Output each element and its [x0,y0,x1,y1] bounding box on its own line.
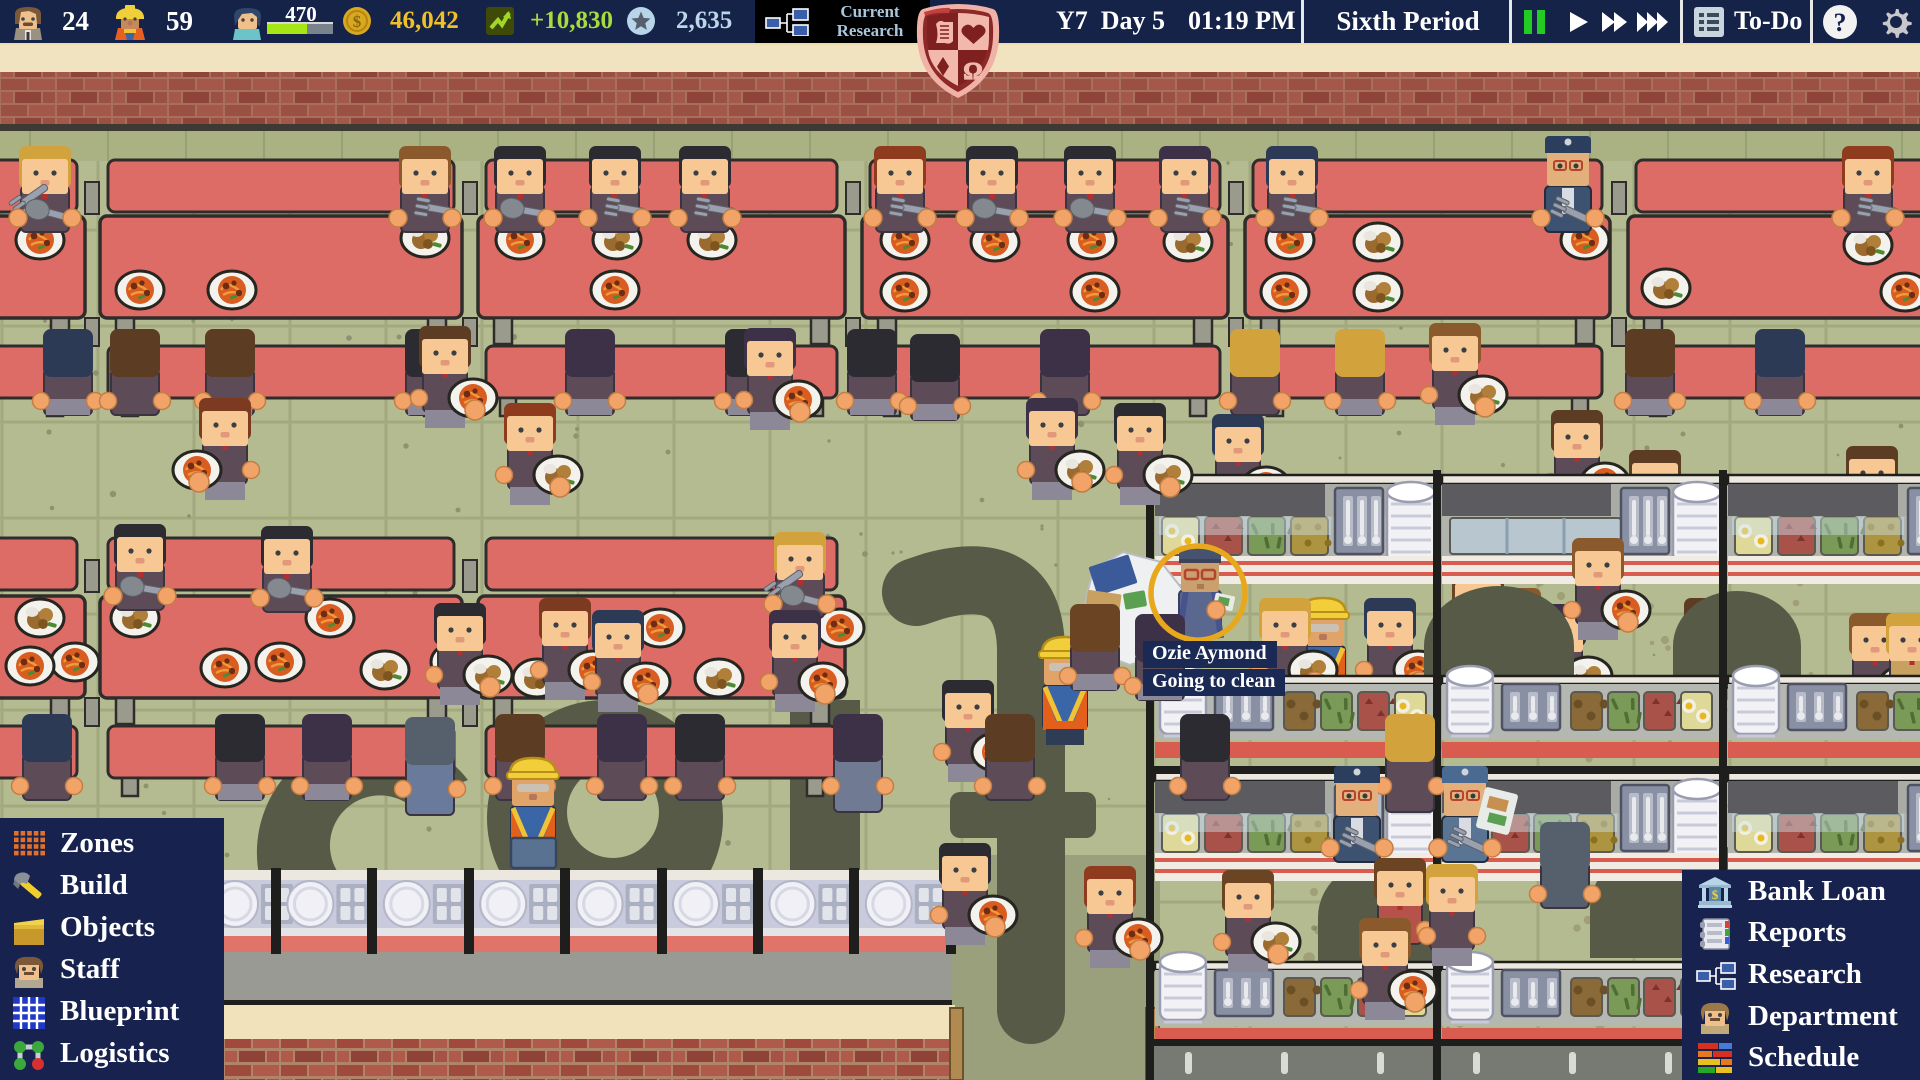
svg-text:?: ? [1834,8,1847,37]
svg-text:$: $ [1712,887,1719,902]
svg-text:Ω: Ω [963,59,982,85]
svg-text:$: $ [353,12,362,31]
